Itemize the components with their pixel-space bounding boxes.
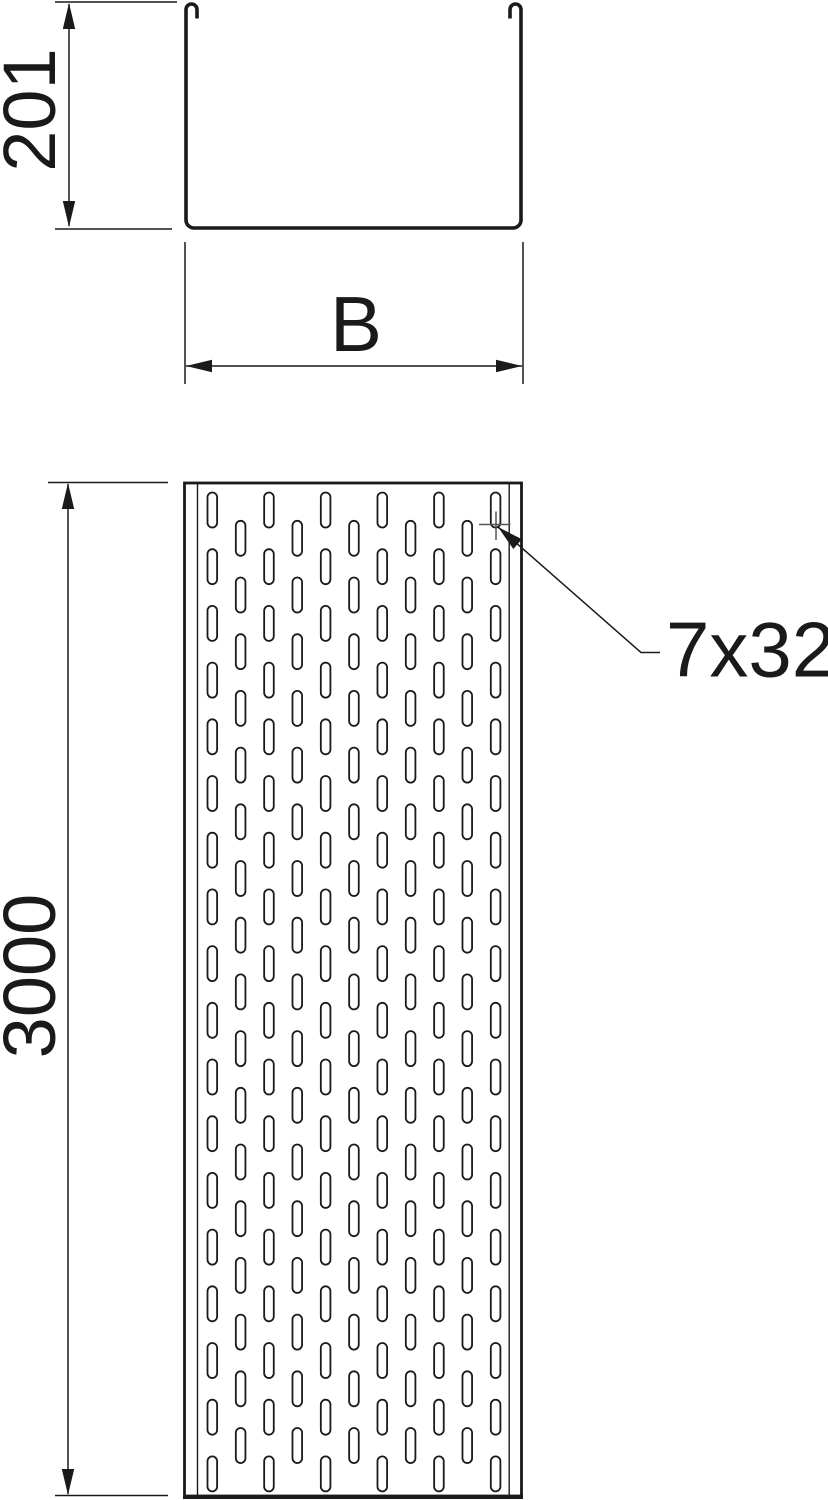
slot-hole <box>236 1315 246 1350</box>
slot-hole <box>406 804 416 839</box>
slot-hole <box>491 549 501 584</box>
plan-view <box>183 483 523 1497</box>
slot-hole <box>349 1315 359 1350</box>
slot-hole <box>349 974 359 1009</box>
slot-hole <box>462 1315 472 1350</box>
slot-hole <box>377 719 387 754</box>
slot-hole <box>264 1116 274 1151</box>
slot-hole <box>462 974 472 1009</box>
slot-hole <box>264 549 274 584</box>
slot-hole <box>292 1201 302 1236</box>
slot-hole <box>462 521 472 556</box>
slot-hole <box>236 1428 246 1463</box>
slot-hole <box>264 493 274 528</box>
slot-hole <box>462 578 472 613</box>
slot-hole <box>434 889 444 924</box>
slot-hole <box>292 691 302 726</box>
slot-hole <box>349 634 359 669</box>
slot-hole <box>491 946 501 981</box>
slot-hole <box>434 1400 444 1435</box>
slot-hole <box>462 1145 472 1180</box>
slot-hole <box>434 719 444 754</box>
slot-hole <box>434 1456 444 1491</box>
slot-hole <box>406 1315 416 1350</box>
slot-hole <box>292 1145 302 1180</box>
slot-hole <box>208 833 218 868</box>
slot-hole <box>321 719 331 754</box>
slot-hole <box>491 606 501 641</box>
slot-hole <box>208 946 218 981</box>
slot-hole <box>462 1031 472 1066</box>
slot-hole <box>434 1116 444 1151</box>
slot-hole <box>491 889 501 924</box>
slot-hole <box>264 1003 274 1038</box>
slot-hole <box>377 1343 387 1378</box>
slot-hole <box>406 1201 416 1236</box>
slot-hole <box>377 1286 387 1321</box>
slot-hole <box>377 663 387 698</box>
slot-hole <box>349 1088 359 1123</box>
slot-hole <box>321 776 331 811</box>
slot-hole <box>236 1371 246 1406</box>
slot-hole <box>292 1031 302 1066</box>
slot-hole <box>491 776 501 811</box>
slot-hole <box>491 1003 501 1038</box>
slot-hole <box>377 833 387 868</box>
slot-callout <box>479 512 660 653</box>
slot-hole <box>208 1173 218 1208</box>
slot-hole <box>236 1145 246 1180</box>
slot-hole <box>462 1258 472 1293</box>
slot-hole <box>321 1230 331 1265</box>
slot-hole <box>321 1400 331 1435</box>
slot-hole <box>377 493 387 528</box>
slot-hole <box>377 776 387 811</box>
slot-hole <box>236 1201 246 1236</box>
slot-hole <box>292 748 302 783</box>
slot-size-label: 7x32 <box>666 610 828 688</box>
slot-hole <box>406 634 416 669</box>
slot-hole <box>208 1400 218 1435</box>
slot-hole <box>377 606 387 641</box>
slot-hole <box>462 1428 472 1463</box>
slot-hole <box>321 549 331 584</box>
slot-hole <box>208 1286 218 1321</box>
slot-hole <box>491 1343 501 1378</box>
slot-hole <box>406 691 416 726</box>
slot-hole <box>491 663 501 698</box>
slot-hole <box>349 918 359 953</box>
slot-hole <box>434 1173 444 1208</box>
slot-hole <box>292 1088 302 1123</box>
slot-hole <box>349 521 359 556</box>
slot-hole <box>208 889 218 924</box>
slot-hole <box>462 1088 472 1123</box>
slot-hole <box>321 889 331 924</box>
slot-hole <box>434 606 444 641</box>
slot-hole <box>208 663 218 698</box>
slot-hole <box>292 1315 302 1350</box>
slot-hole <box>491 1230 501 1265</box>
slot-hole <box>349 1428 359 1463</box>
slot-hole <box>208 1116 218 1151</box>
slot-hole <box>236 974 246 1009</box>
slot-hole <box>236 634 246 669</box>
slot-hole <box>264 1286 274 1321</box>
slot-hole <box>292 1428 302 1463</box>
slot-hole <box>406 1031 416 1066</box>
arrowhead-right <box>496 360 522 372</box>
arrowhead-down <box>63 201 75 227</box>
slot-hole <box>377 1400 387 1435</box>
slot-hole <box>236 861 246 896</box>
slot-hole <box>406 1258 416 1293</box>
slot-hole <box>491 719 501 754</box>
slot-hole <box>236 521 246 556</box>
slot-hole <box>434 946 444 981</box>
slot-hole <box>264 1400 274 1435</box>
slot-hole <box>264 719 274 754</box>
slot-hole <box>349 748 359 783</box>
slot-hole <box>349 691 359 726</box>
slot-hole <box>236 1031 246 1066</box>
slot-hole <box>406 974 416 1009</box>
slot-hole <box>208 606 218 641</box>
slot-hole <box>236 1258 246 1293</box>
slot-hole <box>406 521 416 556</box>
arrowhead-up <box>62 483 74 509</box>
slot-hole <box>406 1371 416 1406</box>
slot-hole <box>491 1400 501 1435</box>
slot-hole <box>349 1031 359 1066</box>
slot-hole <box>292 918 302 953</box>
slot-hole <box>349 1201 359 1236</box>
slot-hole <box>462 1201 472 1236</box>
slot-hole <box>462 691 472 726</box>
slot-hole <box>406 1145 416 1180</box>
slot-hole <box>292 804 302 839</box>
slot-hole <box>236 748 246 783</box>
slot-hole <box>377 1116 387 1151</box>
slot-hole <box>321 493 331 528</box>
slot-hole <box>264 889 274 924</box>
slot-hole <box>406 861 416 896</box>
slot-hole <box>462 804 472 839</box>
slot-hole <box>292 521 302 556</box>
slot-hole <box>434 1060 444 1095</box>
slot-hole <box>208 1230 218 1265</box>
slot-hole <box>208 1060 218 1095</box>
slot-hole <box>264 1343 274 1378</box>
slot-hole <box>434 1003 444 1038</box>
slot-hole <box>264 1060 274 1095</box>
slot-hole <box>491 1456 501 1491</box>
slot-hole <box>434 1230 444 1265</box>
slot-hole <box>208 1003 218 1038</box>
slot-hole <box>434 663 444 698</box>
drawing-linework <box>0 0 828 1500</box>
height-dimension-label: 201 <box>0 48 67 171</box>
slot-hole <box>349 1145 359 1180</box>
arrowhead-up <box>63 3 75 29</box>
slot-hole <box>321 1003 331 1038</box>
slot-hole <box>406 748 416 783</box>
slot-hole <box>349 804 359 839</box>
slot-grid <box>208 493 501 1492</box>
length-dimension-label: 3000 <box>0 894 67 1059</box>
slot-hole <box>434 776 444 811</box>
slot-hole <box>377 1456 387 1491</box>
slot-hole <box>208 776 218 811</box>
slot-hole <box>434 493 444 528</box>
slot-hole <box>292 1258 302 1293</box>
slot-hole <box>462 918 472 953</box>
slot-hole <box>377 1060 387 1095</box>
slot-hole <box>208 1343 218 1378</box>
slot-hole <box>406 1428 416 1463</box>
slot-hole <box>292 974 302 1009</box>
slot-hole <box>264 663 274 698</box>
slot-hole <box>321 663 331 698</box>
slot-hole <box>434 549 444 584</box>
slot-hole <box>491 1116 501 1151</box>
slot-hole <box>377 1003 387 1038</box>
slot-hole <box>434 1286 444 1321</box>
width-dimension-label: B <box>330 285 382 363</box>
slot-hole <box>349 861 359 896</box>
slot-hole <box>406 1088 416 1123</box>
slot-hole <box>321 606 331 641</box>
slot-hole <box>462 634 472 669</box>
slot-hole <box>349 578 359 613</box>
slot-hole <box>462 1371 472 1406</box>
slot-hole <box>208 493 218 528</box>
slot-hole <box>377 1173 387 1208</box>
slot-hole <box>264 1230 274 1265</box>
slot-hole <box>236 804 246 839</box>
slot-hole <box>292 1371 302 1406</box>
slot-hole <box>321 1060 331 1095</box>
slot-hole <box>321 1343 331 1378</box>
slot-hole <box>491 1173 501 1208</box>
slot-hole <box>264 946 274 981</box>
section-view <box>186 4 521 228</box>
slot-hole <box>264 776 274 811</box>
arrowhead-down <box>62 1469 74 1495</box>
slot-hole <box>292 861 302 896</box>
slot-hole <box>491 1286 501 1321</box>
height-dimension <box>55 2 177 229</box>
slot-hole <box>236 691 246 726</box>
slot-hole <box>491 833 501 868</box>
slot-hole <box>321 1116 331 1151</box>
slot-hole <box>321 1173 331 1208</box>
slot-hole <box>349 1371 359 1406</box>
slot-hole <box>208 549 218 584</box>
slot-hole <box>406 578 416 613</box>
slot-hole <box>434 833 444 868</box>
slot-hole <box>321 1456 331 1491</box>
arrowhead-left <box>186 360 212 372</box>
channel-profile <box>186 4 521 228</box>
slot-hole <box>462 748 472 783</box>
slot-hole <box>321 833 331 868</box>
slot-hole <box>292 634 302 669</box>
slot-hole <box>491 1060 501 1095</box>
slot-hole <box>292 578 302 613</box>
slot-hole <box>208 719 218 754</box>
slot-hole <box>462 861 472 896</box>
slot-hole <box>377 889 387 924</box>
slot-hole <box>208 1456 218 1491</box>
slot-hole <box>264 1456 274 1491</box>
slot-hole <box>377 946 387 981</box>
slot-hole <box>236 578 246 613</box>
slot-hole <box>321 1286 331 1321</box>
slot-hole <box>236 918 246 953</box>
technical-drawing: 201 B 3000 7x32 <box>0 0 828 1500</box>
slot-hole <box>264 1173 274 1208</box>
slot-hole <box>349 1258 359 1293</box>
slot-hole <box>377 549 387 584</box>
slot-hole <box>264 833 274 868</box>
slot-hole <box>377 1230 387 1265</box>
slot-hole <box>406 918 416 953</box>
slot-hole <box>264 606 274 641</box>
slot-hole <box>236 1088 246 1123</box>
slot-hole <box>434 1343 444 1378</box>
slot-hole <box>321 946 331 981</box>
